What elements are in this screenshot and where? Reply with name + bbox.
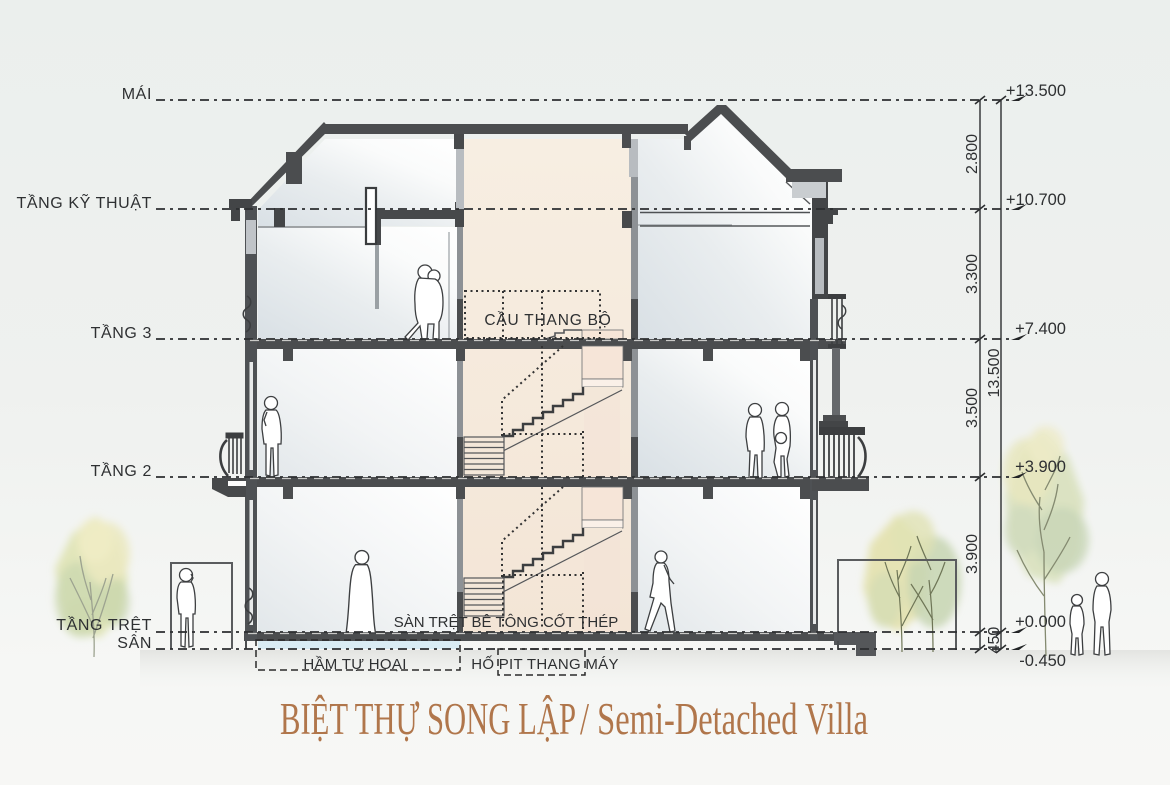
svg-text:TẦNG 2: TẦNG 2: [91, 461, 152, 480]
svg-text:+0.000: +0.000: [1015, 613, 1066, 631]
svg-text:13.500: 13.500: [986, 348, 1003, 397]
svg-text:+10.700: +10.700: [1006, 191, 1066, 209]
svg-text:2.800: 2.800: [964, 134, 981, 174]
svg-text:BIỆT THỰ SONG LẬP: BIỆT THỰ SONG LẬP: [280, 694, 576, 744]
svg-text:+7.400: +7.400: [1015, 320, 1066, 338]
svg-text:3.300: 3.300: [964, 254, 981, 294]
svg-text:SÀN TRỆT BÊ TÔNG CỐT THÉP: SÀN TRỆT BÊ TÔNG CỐT THÉP: [394, 613, 619, 631]
svg-text:SÂN: SÂN: [117, 633, 152, 652]
svg-text:+3.900: +3.900: [1015, 458, 1066, 476]
svg-text:HỐ PIT THANG MÁY: HỐ PIT THANG MÁY: [471, 655, 619, 673]
svg-text:TẦNG 3: TẦNG 3: [91, 323, 152, 342]
svg-text:TẦNG TRỆT: TẦNG TRỆT: [56, 615, 152, 634]
svg-text:-0.450: -0.450: [1019, 652, 1066, 670]
svg-text:3.900: 3.900: [964, 534, 981, 574]
svg-text:TẦNG KỸ THUẬT: TẦNG KỸ THUẬT: [16, 192, 152, 212]
svg-text:450: 450: [986, 627, 1003, 654]
svg-text:CẦU THANG BỘ: CẦU THANG BỘ: [484, 312, 611, 329]
svg-text:3.500: 3.500: [964, 388, 981, 428]
svg-text:/ Semi-Detached Villa: / Semi-Detached Villa: [580, 694, 868, 744]
svg-text:MÁI: MÁI: [122, 84, 152, 103]
svg-text:+13.500: +13.500: [1006, 82, 1066, 100]
